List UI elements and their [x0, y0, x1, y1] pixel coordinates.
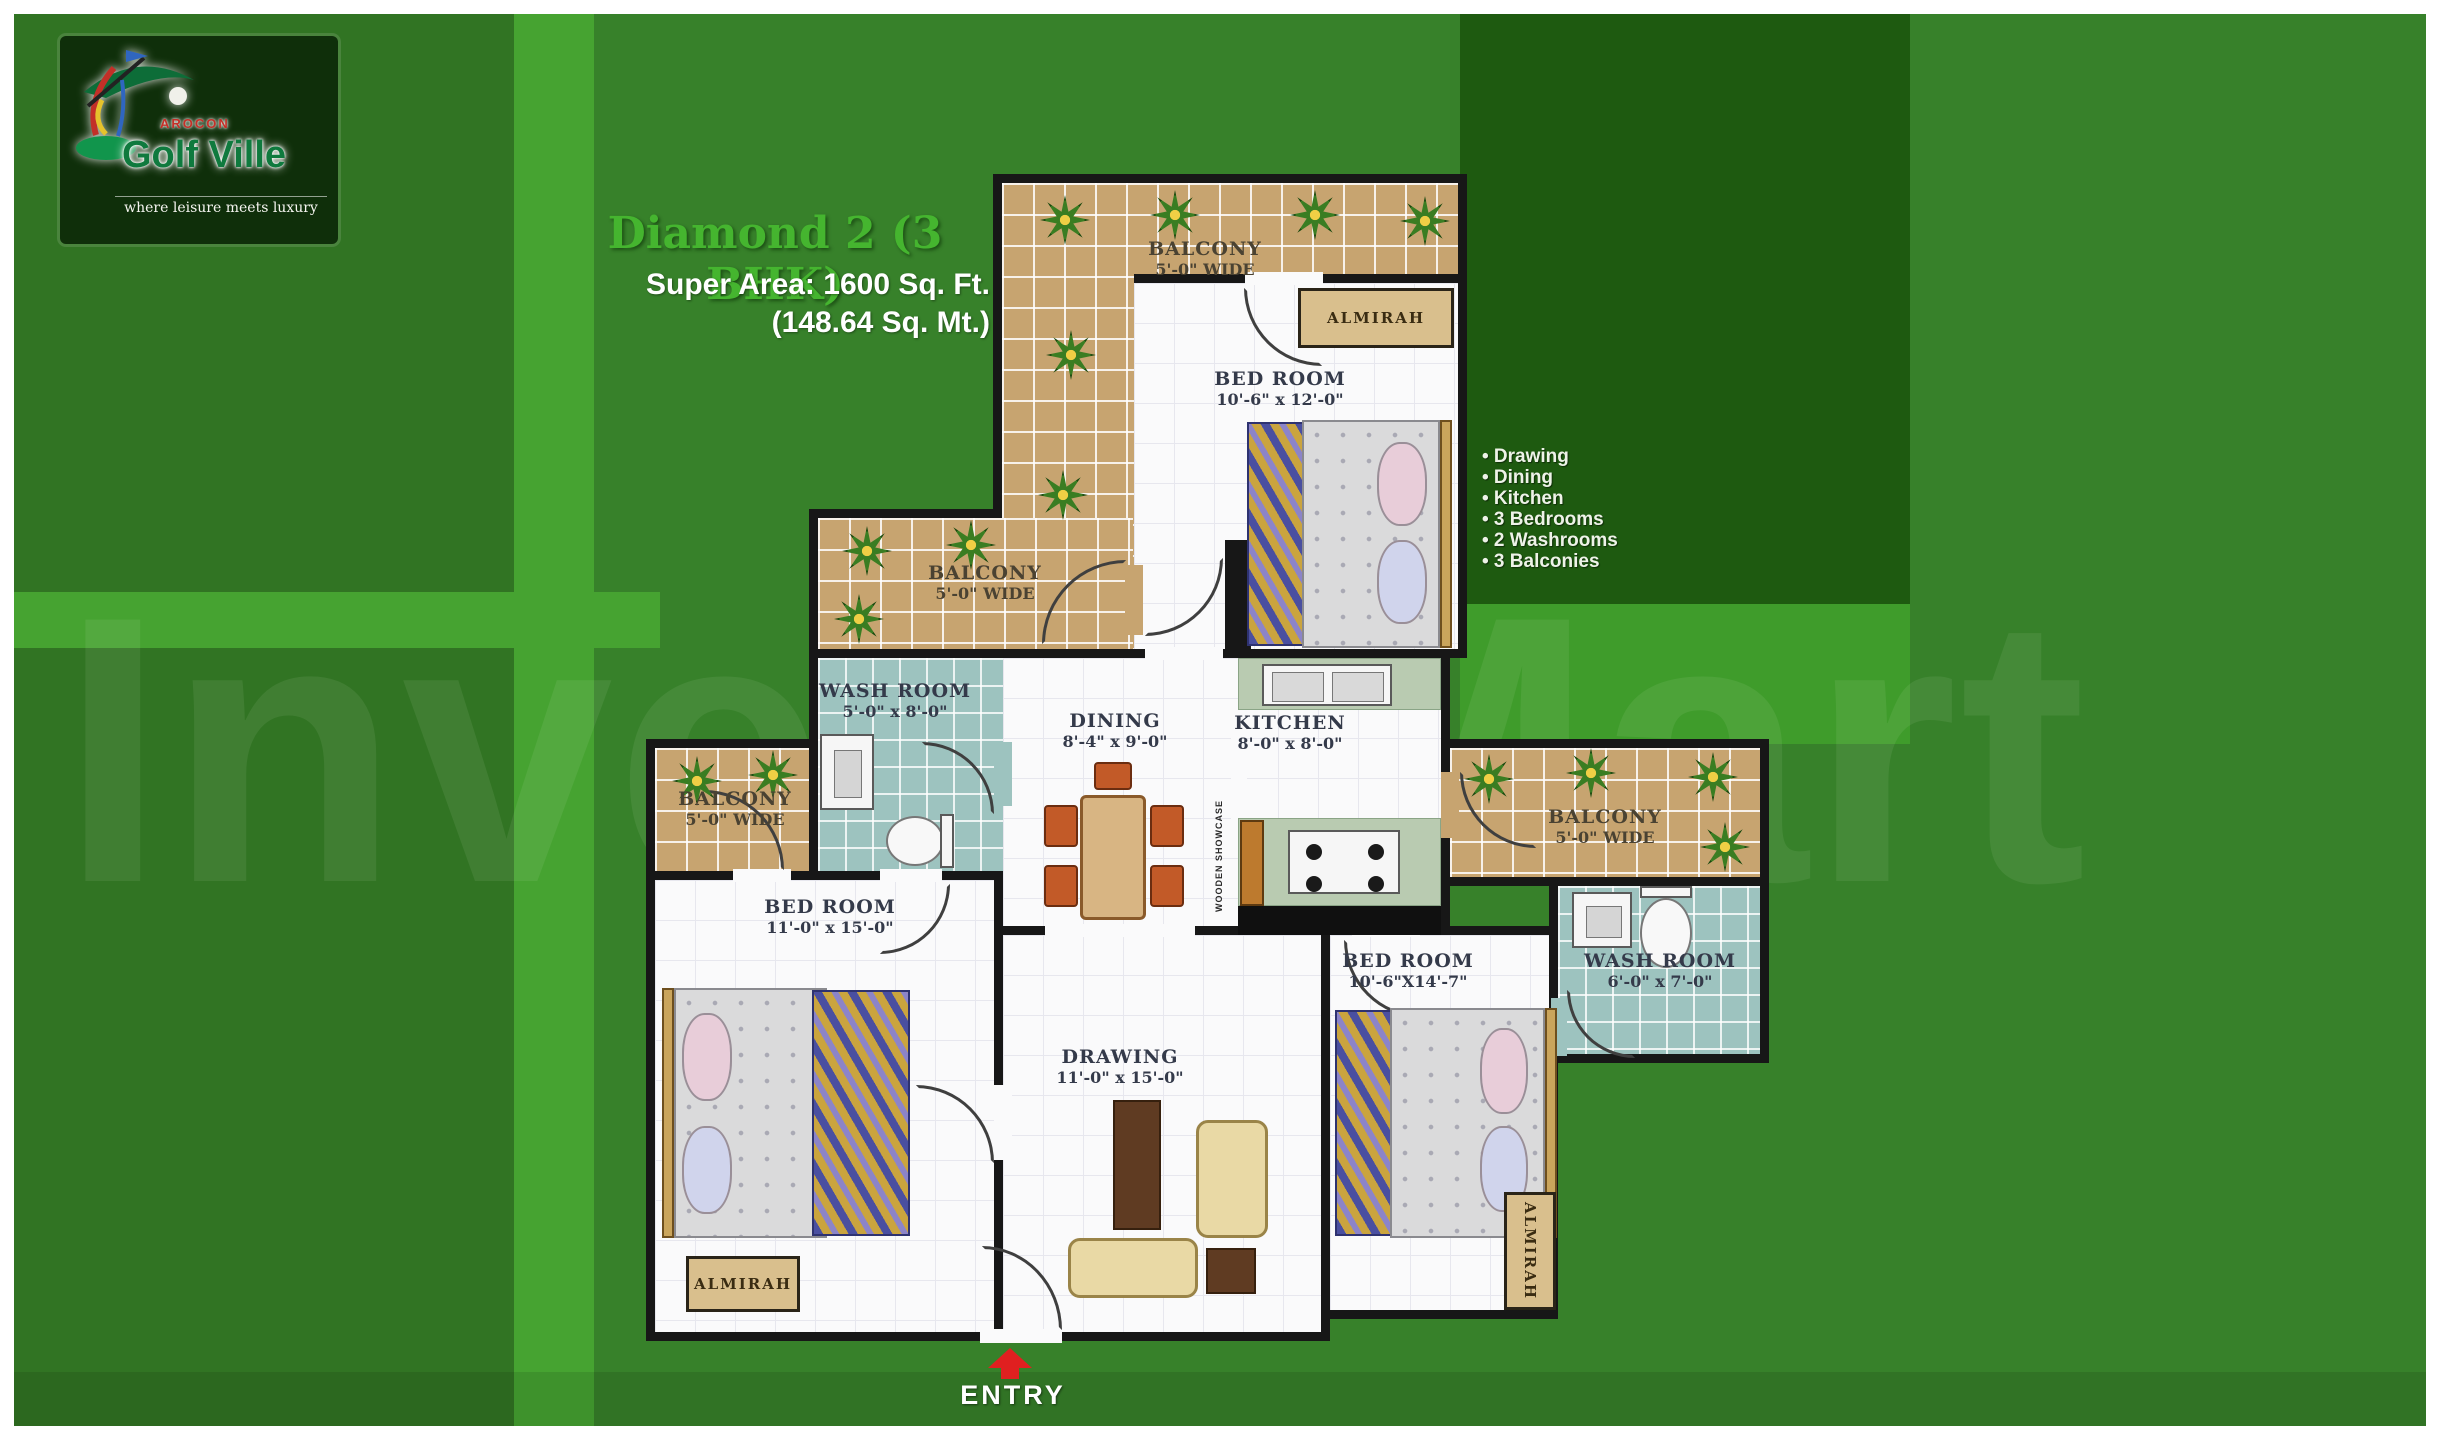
entry-label: ENTRY	[938, 1380, 1088, 1411]
brand-tagline: where leisure meets luxury	[115, 196, 327, 216]
feature-list: • Drawing • Dining • Kitchen • 3 Bedroom…	[1482, 446, 1762, 572]
plant-icon	[1290, 190, 1340, 240]
bed-top-bedroom	[1247, 420, 1452, 648]
bed-left-bedroom	[662, 988, 910, 1238]
kitchen-black-counter-band	[1238, 906, 1441, 935]
almirah-left: ALMIRAH	[686, 1256, 800, 1312]
toilet-tank	[1640, 886, 1692, 898]
feature-item: • Dining	[1482, 467, 1762, 488]
toilet-tank	[940, 814, 954, 868]
door-gap	[733, 869, 791, 882]
room-label-washroom-right: WASH ROOM 6'-0" x 7'-0"	[1565, 950, 1755, 991]
stove	[1288, 830, 1400, 894]
room-label-balcony-mid: BALCONY 5'-0" WIDE	[880, 562, 1090, 603]
feature-item: • Drawing	[1482, 446, 1762, 467]
entry-arrow-icon	[988, 1348, 1032, 1368]
room-label-bedroom-left: BED ROOM 11'-0" x 15'-0"	[715, 896, 945, 937]
feature-item: • 3 Bedrooms	[1482, 509, 1762, 530]
dining-chair	[1094, 762, 1132, 790]
door-gap	[880, 869, 942, 882]
plant-icon	[1688, 752, 1738, 802]
washbasin	[1572, 892, 1632, 948]
room-label-bedroom-top: BED ROOM 10'-6" x 12'-0"	[1170, 368, 1390, 409]
floor-plan: WOODEN SHOWCASE ALMIRAH ALMIRAH ALMIRAH …	[0, 0, 2440, 1440]
washbasin	[820, 734, 874, 810]
plant-icon	[1566, 748, 1616, 798]
almirah-top: ALMIRAH	[1298, 288, 1454, 348]
room-label-balcony-top: BALCONY 5'-0" WIDE	[1095, 238, 1315, 279]
super-area-line2: (148.64 Sq. Mt.)	[560, 306, 990, 340]
door-gap	[994, 742, 1012, 806]
sofa-three-seater	[1068, 1238, 1198, 1298]
room-label-drawing: DRAWING 11'-0" x 15'-0"	[1015, 1046, 1225, 1087]
wooden-showcase-label: WOODEN SHOWCASE	[1214, 788, 1224, 912]
floor-plan-page: Invest Mart AROCON Golf Ville where leis…	[0, 0, 2440, 1440]
wooden-showcase	[1240, 820, 1264, 906]
dining-table	[1080, 795, 1146, 920]
dining-chair	[1044, 805, 1078, 847]
plant-icon	[1150, 190, 1200, 240]
room-label-bedroom-right: BED ROOM 10'-6"X14'-7"	[1308, 950, 1508, 991]
kitchen-sink	[1262, 664, 1392, 706]
feature-item: • Kitchen	[1482, 488, 1762, 509]
feature-item: • 3 Balconies	[1482, 551, 1762, 572]
tv-table	[1113, 1100, 1161, 1230]
room-label-washroom-mid: WASH ROOM 5'-0" x 8'-0"	[800, 680, 990, 721]
plant-icon	[1040, 195, 1090, 245]
opening-gap	[1145, 647, 1223, 660]
entry-arrow-stem	[1001, 1366, 1019, 1379]
plant-icon	[1046, 330, 1096, 380]
room-label-balcony-left: BALCONY 5'-0" WIDE	[665, 788, 805, 829]
plant-icon	[834, 594, 884, 644]
entry-door-gap	[980, 1329, 1062, 1343]
dining-chair	[1150, 865, 1184, 907]
room-label-dining: DINING 8'-4" x 9'-0"	[1010, 710, 1220, 751]
sofa-single	[1196, 1120, 1268, 1238]
super-area-line1: Super Area: 1600 Sq. Ft.	[560, 268, 990, 302]
plant-icon	[1038, 470, 1088, 520]
side-table	[1206, 1248, 1256, 1294]
opening-gap	[1045, 924, 1195, 937]
door-gap	[994, 1085, 1012, 1160]
brand-name-small: AROCON	[160, 116, 230, 131]
brand-name: Golf Ville	[122, 134, 322, 177]
brand-logo: AROCON Golf Ville where leisure meets lu…	[60, 36, 338, 244]
door-gap	[1441, 772, 1459, 838]
dining-chair	[1150, 805, 1184, 847]
plant-icon	[1400, 196, 1450, 246]
room-label-kitchen: KITCHEN 8'-0" x 8'-0"	[1190, 712, 1390, 753]
feature-item: • 2 Washrooms	[1482, 530, 1762, 551]
dining-chair	[1044, 865, 1078, 907]
room-label-balcony-right: BALCONY 5'-0" WIDE	[1500, 806, 1710, 847]
almirah-right: ALMIRAH	[1504, 1192, 1556, 1310]
plant-icon	[1464, 754, 1514, 804]
door-gap	[1125, 565, 1143, 635]
toilet	[886, 816, 944, 866]
